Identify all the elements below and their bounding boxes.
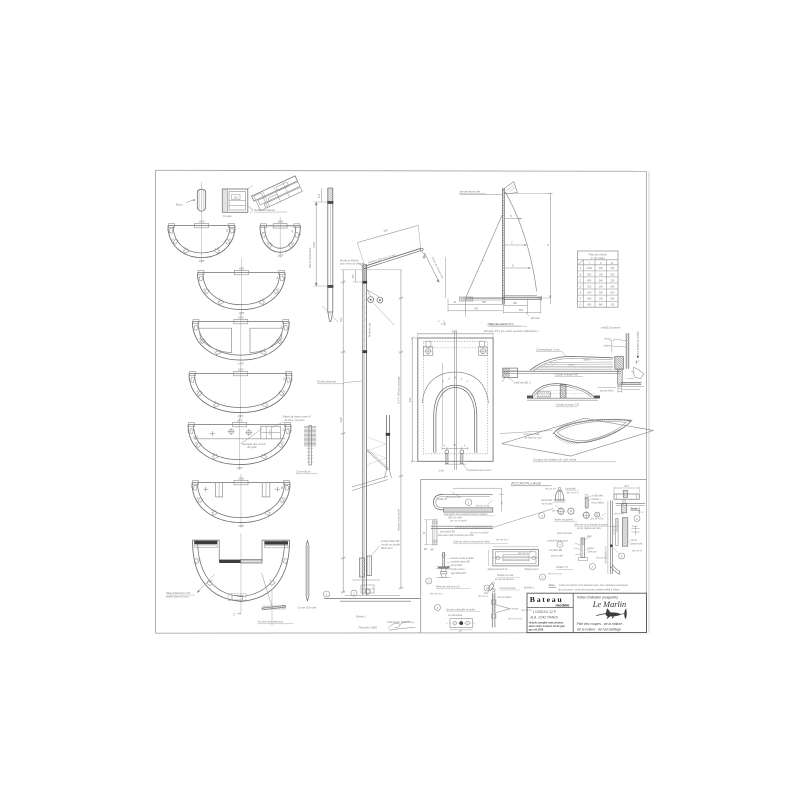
svg-text:tige filetée Ø3: tige filetée Ø3 [451, 572, 466, 575]
svg-text:Coupe suivant AB: Coupe suivant AB [555, 372, 578, 376]
svg-text:Contreplaqué 5 mm: Contreplaqué 5 mm [536, 348, 560, 352]
svg-text:tube laiton Ø3: tube laiton Ø3 [440, 530, 456, 533]
svg-text:n° de voiles: n° de voiles [591, 256, 606, 260]
svg-text:205: 205 [598, 285, 604, 288]
svg-text:tout en laiton: tout en laiton [498, 596, 512, 599]
svg-text:650: 650 [408, 397, 412, 402]
svg-text:1500: 1500 [238, 476, 244, 480]
svg-text:modèle: modèle [555, 602, 570, 607]
svg-text:coulisseau avec écrou: coulisseau avec écrou [467, 469, 492, 472]
svg-text:des vis et ro: des vis et ro [567, 492, 580, 495]
svg-text:des vis et rondelle: des vis et rondelle [470, 532, 489, 535]
svg-text:1500: 1500 [238, 367, 244, 371]
svg-text:230: 230 [609, 279, 615, 282]
svg-text:295: 295 [598, 273, 604, 276]
svg-text:axe du winch: axe du winch [600, 390, 614, 392]
svg-text:écrou noyé: écrou noyé [551, 555, 563, 558]
svg-text:du haut du rouf: du haut du rouf [525, 437, 542, 440]
svg-text:fixation du pied de mât AR: fixation du pied de mât AR [636, 332, 639, 359]
svg-text:1425: 1425 [339, 417, 343, 423]
svg-text:30 40: 30 40 [632, 525, 638, 528]
svg-text:300: 300 [599, 291, 604, 294]
svg-text:Mât de flèche Ø10: Mât de flèche Ø10 [309, 247, 312, 268]
svg-text:Patin d'étambot n°10: Patin d'étambot n°10 [166, 591, 191, 595]
svg-text:Plan des coupes - de la mâ: Plan des coupes - de la mâture - [577, 622, 626, 626]
svg-text:Détail n°4: Détail n°4 [557, 565, 569, 569]
svg-text:A: A [579, 266, 582, 270]
svg-text:des vis: des vis [552, 511, 560, 513]
svg-text:têtes de vis et boucles à: têtes de vis et boucles à quatre [575, 523, 609, 526]
svg-text:Écoute: Écoute [531, 315, 540, 320]
svg-text:Côte du ridoir et boucle de l': Côte du ridoir et boucle de l'étai [453, 540, 490, 544]
svg-text:prise d'écoute: prise d'écoute [556, 532, 572, 535]
svg-text:hauteur sous barrot: hauteur sous barrot [397, 509, 400, 531]
svg-text:1: 1 [282, 428, 284, 432]
svg-text:Soigneusem t: Soigneusem t [525, 568, 540, 571]
svg-text:5: 5 [226, 229, 228, 233]
svg-text:Anneau utilisable de quille: Anneau utilisable de quille [445, 608, 476, 611]
svg-text:G.Bernardin 15/11/52: G.Bernardin 15/11/52 [387, 621, 410, 624]
svg-text:263: 263 [609, 273, 615, 276]
svg-text:G: G [579, 303, 581, 307]
svg-text:des vis et r: des vis et r [596, 557, 607, 560]
svg-text:de bout, voir plan: de bout, voir plan [285, 418, 305, 422]
svg-text:C: C [580, 278, 582, 282]
svg-text:contre-écrou: contre-écrou [451, 568, 465, 571]
svg-text:280: 280 [598, 298, 604, 301]
svg-text:240: 240 [598, 279, 604, 282]
svg-text:de golfe: de golfe [247, 445, 257, 449]
svg-text:Écou: Écou [176, 202, 183, 207]
svg-text:ACCASTILLAGE: ACCASTILLAGE [510, 481, 542, 486]
svg-text:Vu des Son dessous: Vu des Son dessous [258, 620, 284, 624]
svg-text:Planche 1500: Planche 1500 [359, 625, 378, 629]
svg-text:530: 530 [587, 291, 592, 294]
svg-text:fraisée +: fraisée + [592, 498, 602, 501]
svg-text:dans notre numéro 10 de juin: dans notre numéro 10 de juin [529, 624, 566, 628]
svg-text:Croquis de fixation du: Croquis de fixation du rouf métal [533, 457, 577, 461]
svg-text:695: 695 [587, 279, 592, 282]
svg-text:des vis et ro: des vis et ro [496, 539, 509, 542]
svg-text:B.A. 2242 PARIS: B.A. 2242 PARIS [531, 616, 559, 620]
svg-text:470: 470 [318, 193, 321, 198]
svg-text:de la voilure - de l'accas: de la voilure - de l'accastillage [577, 627, 621, 631]
svg-text:Poulie d'étai avt: Poulie d'étai avt [317, 380, 336, 384]
svg-text:1500: 1500 [237, 418, 243, 422]
svg-text:1505: 1505 [237, 466, 243, 470]
svg-text:barrot: barrot [605, 338, 611, 341]
svg-text:510: 510 [339, 317, 343, 322]
svg-text:rondelle laiton Ø8: rondelle laiton Ø8 [451, 560, 470, 563]
svg-text:6: 6 [291, 229, 293, 233]
svg-text:1505: 1505 [238, 524, 244, 528]
svg-text:des vis et ro: des vis et ro [430, 593, 443, 596]
svg-text:520: 520 [610, 291, 615, 294]
svg-text:1505: 1505 [238, 311, 244, 315]
svg-text:1: 1 [468, 501, 470, 505]
svg-text:ou les réglera sur banc: ou les réglera sur banc [577, 527, 602, 530]
svg-text:des vis et ron: des vis et ron [548, 573, 562, 576]
svg-text:2 bis: 2 bis [438, 469, 445, 473]
svg-text:385: 385 [610, 285, 615, 288]
svg-text:renfort: renfort [568, 363, 575, 366]
svg-text:des vis et ron: des vis et ron [476, 505, 490, 508]
svg-text:L'OISEAU 12 P: L'OISEAU 12 P [533, 610, 557, 614]
svg-text:fixation du mât: fixation du mât [497, 574, 514, 577]
svg-text:filetés récupérés: filetés récupérés [555, 519, 574, 522]
svg-text:2: 2 [232, 613, 235, 617]
svg-text:Nota: Nota [549, 583, 555, 587]
svg-text:des vis et ron: des vis et ron [590, 518, 604, 521]
svg-text:axe de réa en tête: axe de réa en tête [459, 190, 480, 194]
svg-text:Butée 2: Butée 2 [631, 508, 641, 511]
svg-text:(emboîté): (emboîté) [566, 487, 576, 490]
svg-text:380: 380 [599, 267, 604, 270]
svg-text:rail de: rail de [631, 539, 638, 542]
svg-text:1500: 1500 [238, 315, 244, 319]
svg-text:1500: 1500 [238, 266, 244, 270]
svg-text:1500: 1500 [277, 220, 283, 224]
svg-text:laiton de 8: laiton de 8 [381, 547, 393, 550]
svg-text:des vis et: des vis et [632, 550, 642, 553]
svg-text:des vis et rond: des vis et rond [446, 496, 462, 499]
svg-text:430: 430 [452, 330, 457, 334]
svg-text:Voilier d'initiation (maqu: Voilier d'initiation (maquette) [577, 595, 618, 599]
svg-text:Plan du rouf n°2: Plan du rouf n°2 [489, 322, 511, 326]
svg-text:940: 940 [599, 304, 604, 307]
svg-text:E: E [546, 244, 550, 246]
svg-text:1505: 1505 [199, 259, 205, 263]
svg-text:ouverture faite: ouverture faite [524, 433, 541, 436]
svg-text:245: 245 [609, 298, 615, 301]
svg-text:des vis et rondel: des vis et rondel [450, 520, 467, 523]
svg-text:520: 520 [587, 285, 592, 288]
svg-text:vis laiton Ø3: vis laiton Ø3 [549, 549, 563, 552]
svg-text:par réf 2249: par réf 2249 [528, 628, 544, 632]
svg-text:E: E [580, 290, 582, 294]
svg-text:grand voile: grand voile [631, 543, 643, 546]
svg-text:des vis et r: des vis et r [545, 488, 556, 491]
svg-text:Soigneusement lim: Soigneusement lim [488, 568, 508, 571]
svg-text:crochet: crochet [627, 377, 635, 380]
svg-text:renvoi d'écoute: renvoi d'écoute [500, 587, 517, 590]
svg-text:Coupe suivant CD: Coupe suivant CD [556, 403, 579, 407]
svg-text:1505: 1505 [277, 254, 283, 258]
svg-text:1505: 1505 [238, 362, 244, 366]
svg-text:V: V [542, 575, 544, 579]
svg-text:II: II [600, 261, 602, 265]
svg-text:Échelle 1/5 ( les cotes suivan: Échelle 1/5 ( les cotes suivant millimèt… [484, 328, 539, 333]
svg-text:Corne Gd voile: Corne Gd voile [298, 606, 317, 610]
svg-text:petit étai Ø1.5: petit étai Ø1.5 [514, 381, 532, 385]
svg-text:750: 750 [474, 307, 479, 310]
svg-text:côté rouf: côté rouf [588, 551, 597, 554]
svg-text:700: 700 [610, 267, 615, 270]
svg-text:vis Ø3 tête: vis Ø3 tête [592, 494, 604, 497]
svg-text:1505: 1505 [238, 414, 244, 418]
svg-text:4: 4 [276, 276, 278, 280]
svg-text:écoute: écoute [512, 608, 520, 611]
svg-text:passage des servos: passage des servos [241, 442, 267, 446]
svg-text:D: D [580, 284, 582, 288]
svg-text:boucle soudé à l'étain: boucle soudé à l'étain [451, 557, 475, 560]
svg-text:150: 150 [234, 197, 239, 200]
svg-text:860: 860 [587, 304, 592, 307]
svg-text:écrou Ø3n: écrou Ø3n [451, 564, 463, 567]
svg-text:500: 500 [513, 302, 518, 305]
svg-text:B: B [580, 272, 582, 276]
svg-text:Plan de mètres: Plan de mètres [589, 252, 608, 256]
svg-text:toutes les pièces sont éta: toutes les pièces sont étamées avec des … [559, 584, 629, 587]
svg-text:mât Ø12 duralumin: mât Ø12 duralumin [601, 326, 621, 329]
svg-text:Coupe: Coupe [223, 214, 232, 218]
svg-text:130: 130 [610, 304, 615, 307]
svg-text:Article complet avec photos: Article complet avec photos [528, 620, 564, 624]
svg-text:A: A [443, 444, 446, 447]
svg-text:des vis et: des vis et [614, 513, 624, 516]
svg-text:des vis et ron: des vis et ron [508, 618, 522, 621]
svg-text:Échelle 1: Échelle 1 [524, 587, 535, 590]
svg-text:étai avant relié à l'étrave pa: étai avant relié à l'étrave par ridoir [438, 534, 474, 537]
svg-text:de commerce ; listes des bo: de commerce ; listes des bonnes meilleur… [558, 588, 620, 591]
svg-text:600: 600 [519, 309, 524, 312]
svg-text:C: C [511, 242, 513, 245]
svg-text:D: D [512, 265, 514, 268]
svg-text:Profil du mât: Profil du mât [368, 323, 371, 337]
svg-text:Le Marlin: Le Marlin [592, 600, 626, 609]
svg-text:III: III [611, 261, 613, 265]
svg-text:2045: 2045 [586, 267, 593, 270]
svg-text:cloison: cloison [604, 346, 612, 348]
svg-text:Corne Bout.: Corne Bout. [296, 470, 311, 474]
svg-text:580: 580 [482, 301, 487, 304]
svg-text:400: 400 [352, 274, 355, 279]
svg-text:Échelle 1: Échelle 1 [356, 616, 367, 619]
svg-text:écrou laiton: écrou laiton [592, 502, 605, 505]
svg-text:1870: 1870 [312, 242, 316, 248]
svg-text:Barrot: Barrot [584, 359, 591, 362]
svg-text:Pied de mât éch 1/1: Pied de mât éch 1/1 [436, 585, 460, 589]
svg-text:940: 940 [587, 298, 592, 301]
svg-text:S.Y.P. 130 pour passage: S.Y.P. 130 pour passage [397, 376, 400, 404]
svg-text:Détail de liaison: Détail de liaison [254, 208, 276, 212]
svg-text:coulisseau: coulisseau [614, 524, 616, 535]
svg-text:280 mm utile: 280 mm utile [447, 516, 462, 519]
svg-text:sur le pont: sur le pont [542, 503, 553, 506]
svg-text:rail du guide 1 m: rail du guide 1 m [606, 546, 608, 563]
svg-text:et vue de dessus: et vue de dessus [495, 578, 515, 581]
svg-text:des vis et: des vis et [478, 595, 488, 598]
svg-text:Ø3: Ø3 [423, 549, 428, 551]
svg-text:850: 850 [587, 273, 592, 276]
svg-text:1500: 1500 [199, 219, 205, 223]
svg-text:2: 2 [282, 377, 285, 381]
svg-text:vis alternative: vis alternative [448, 614, 463, 617]
svg-text:40.5: 40.5 [624, 485, 629, 488]
svg-text:pontet fixé: pontet fixé [540, 499, 553, 502]
